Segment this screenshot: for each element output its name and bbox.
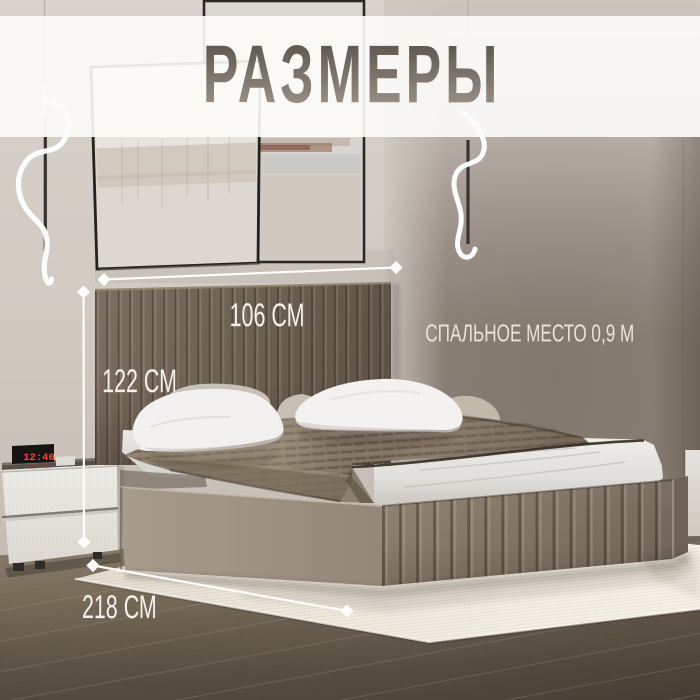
svg-text:122 СМ: 122 СМ [102, 362, 177, 399]
svg-text:12:40: 12:40 [23, 452, 55, 464]
svg-text:15:40: 15:40 [27, 464, 50, 472]
svg-text:106 СМ: 106 СМ [230, 297, 305, 334]
svg-text:СПАЛЬНОЕ МЕСТО 0,9 М: СПАЛЬНОЕ МЕСТО 0,9 М [425, 320, 634, 347]
svg-text:РАЗМЕРЫ: РАЗМЕРЫ [203, 28, 502, 121]
svg-text:218 СМ: 218 СМ [82, 588, 157, 625]
